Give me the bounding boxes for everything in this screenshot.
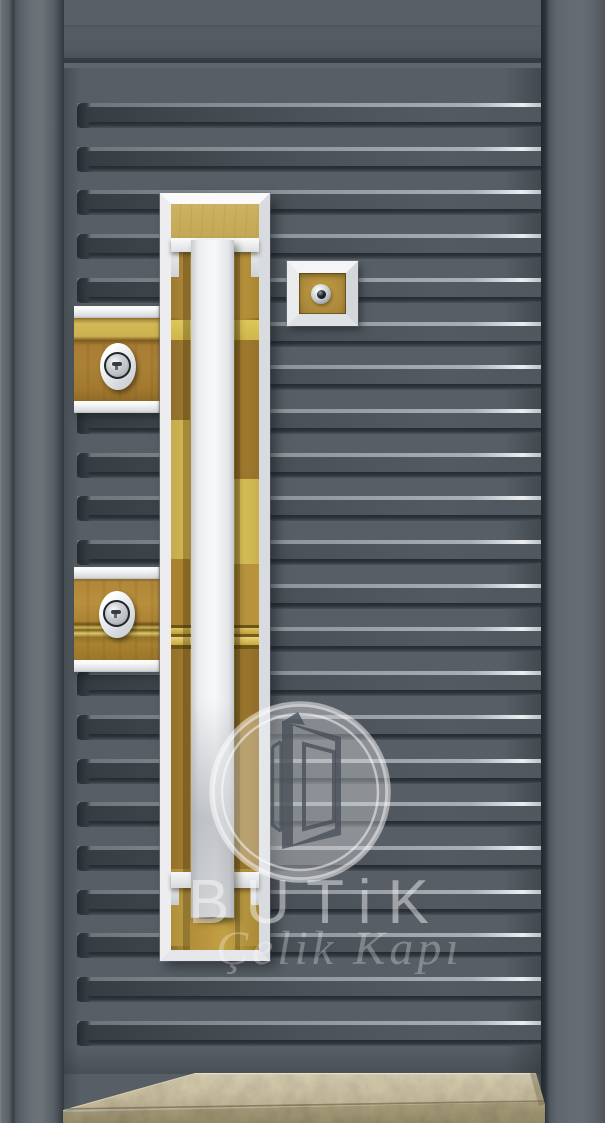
svg-text:Çelik Kapı: Çelik Kapı	[216, 922, 463, 975]
